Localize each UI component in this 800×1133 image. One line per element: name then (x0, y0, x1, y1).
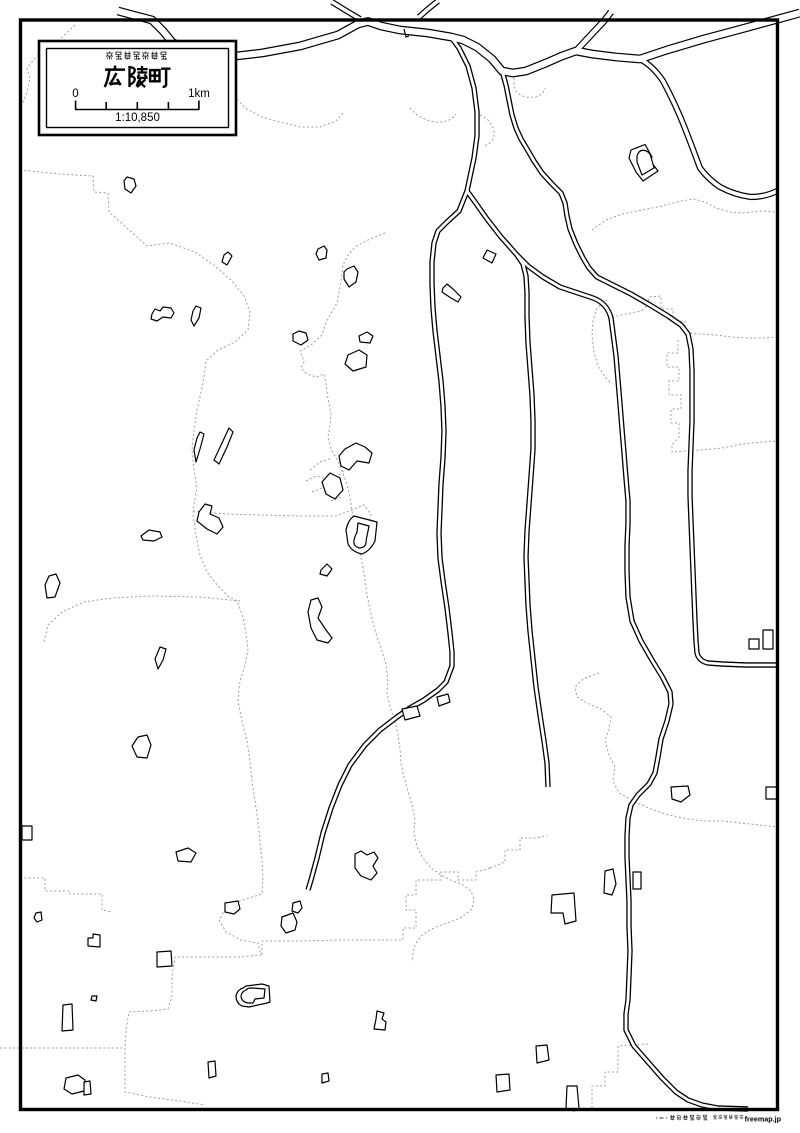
svg-text:1:10,850: 1:10,850 (115, 112, 160, 124)
svg-text:0: 0 (72, 88, 78, 100)
svg-text:freemap.jp: freemap.jp (745, 1115, 782, 1124)
svg-text:1km: 1km (188, 88, 210, 100)
